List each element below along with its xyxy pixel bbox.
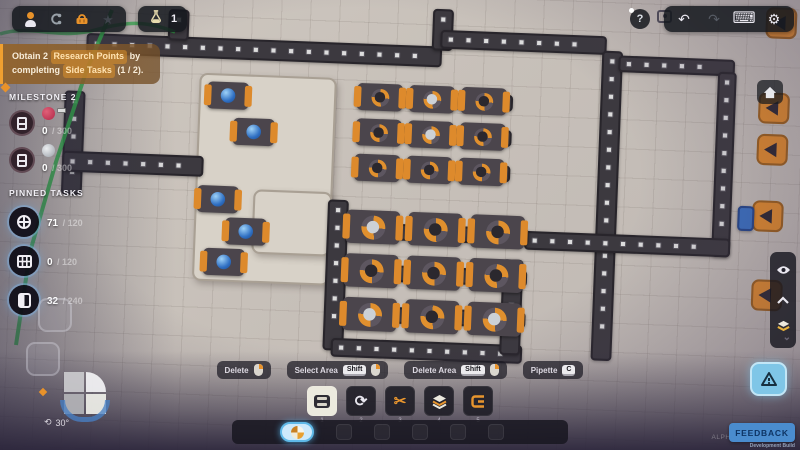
belt-item xyxy=(606,147,612,153)
c-key-badge: C xyxy=(562,365,575,376)
half-shape-icon xyxy=(9,285,39,315)
belt-item xyxy=(720,185,726,191)
locked-feature-icon: ★ xyxy=(96,7,120,31)
keybindings-button[interactable]: ⌨ xyxy=(732,7,756,31)
belt-item xyxy=(721,150,727,156)
belt-item xyxy=(626,61,632,67)
belt-item xyxy=(679,63,685,69)
machine[interactable] xyxy=(468,258,523,293)
belt-item xyxy=(217,45,223,51)
pinned-progress-value: 71 xyxy=(47,218,58,229)
empty-slot[interactable] xyxy=(374,424,390,440)
belt-item xyxy=(549,238,555,244)
belt-item xyxy=(140,161,146,167)
belt-item xyxy=(341,50,347,56)
machine[interactable] xyxy=(345,209,400,244)
belt-item xyxy=(600,288,606,294)
machine[interactable] xyxy=(404,299,459,334)
empty-slot[interactable] xyxy=(488,424,504,440)
belt-item xyxy=(518,39,524,45)
objective-highlight-side-tasks: Side Tasks xyxy=(63,64,115,78)
hint-select-area: Select Area Shift xyxy=(287,361,389,379)
belt-item xyxy=(331,295,337,301)
belt-item xyxy=(601,270,607,276)
development-build-label: Development Build xyxy=(750,443,795,449)
target-shape-icon xyxy=(9,207,39,237)
machine[interactable] xyxy=(406,255,461,290)
mouse-icon xyxy=(371,364,380,376)
machine[interactable] xyxy=(202,248,245,277)
shop-basket-icon[interactable] xyxy=(70,7,94,31)
belt-item xyxy=(323,49,329,55)
chevron-up-icon xyxy=(777,296,789,304)
shape-slot-bar xyxy=(232,420,568,444)
machine[interactable] xyxy=(406,156,453,185)
redo-button[interactable]: ↷ xyxy=(702,7,726,31)
undo-icon: ↶ xyxy=(678,12,690,26)
belt-item xyxy=(637,241,643,247)
tool-belts[interactable]: 1 xyxy=(307,386,337,416)
shift-key-badge: Shift xyxy=(461,365,485,376)
selected-shape-button[interactable] xyxy=(280,422,314,442)
shift-key-badge: Shift xyxy=(343,365,367,376)
warning-button[interactable] xyxy=(750,362,787,396)
belt-item xyxy=(444,348,450,354)
pinned-progress-total: / 120 xyxy=(63,218,83,228)
research-points-counter[interactable]: 1 xyxy=(138,6,187,32)
belt-item xyxy=(288,48,294,54)
pinned-tasks-panel: PINNED TASKS 71 / 120 0 / 120 32 / 240 xyxy=(9,188,139,315)
belt-item xyxy=(164,43,170,49)
top-right-toolbar: ↶ ↷ ⌨ ⚙ xyxy=(664,6,794,32)
machine[interactable] xyxy=(224,217,267,246)
tool-rotate[interactable]: ⟳ 2 xyxy=(346,386,376,416)
hint-delete: Delete xyxy=(217,361,271,379)
milestone-goal-row[interactable]: 0 / 300 xyxy=(9,107,139,139)
belt-item xyxy=(334,225,340,231)
research-count: 1 xyxy=(171,13,177,25)
hint-label: Delete xyxy=(225,366,249,375)
machine[interactable] xyxy=(357,83,404,112)
belt-item xyxy=(604,200,610,206)
belt-item xyxy=(333,260,339,266)
flask-icon xyxy=(148,9,164,30)
belt-item xyxy=(448,36,454,42)
belt-item xyxy=(440,16,446,22)
pinned-task-row[interactable]: 32 / 240 xyxy=(9,285,139,315)
machine[interactable] xyxy=(342,297,397,332)
character-icon[interactable] xyxy=(18,7,42,31)
belt-item xyxy=(465,37,471,43)
machine[interactable] xyxy=(197,185,240,214)
pinned-task-row[interactable]: 0 / 120 xyxy=(9,246,139,276)
layer-up-button[interactable] xyxy=(777,291,789,309)
machine[interactable] xyxy=(408,212,463,247)
keyboard-icon: ⌨ xyxy=(732,11,755,27)
belt-item xyxy=(175,162,181,168)
layer-stack-icon xyxy=(776,320,791,333)
belt-item xyxy=(723,97,729,103)
machine[interactable] xyxy=(207,81,250,110)
hint-label: Pipette xyxy=(531,366,558,375)
machine[interactable] xyxy=(459,122,506,151)
belt-item xyxy=(235,46,241,52)
grey-shape-icon xyxy=(42,144,55,157)
belt-item xyxy=(599,323,605,329)
belt-item xyxy=(253,47,259,53)
empty-slot[interactable] xyxy=(450,424,466,440)
machine[interactable] xyxy=(344,253,399,288)
milestone-progress-value: 0 xyxy=(42,163,48,174)
machine[interactable] xyxy=(458,158,505,187)
belt-item xyxy=(603,217,609,223)
belt-item xyxy=(158,162,164,168)
belt-item xyxy=(332,278,338,284)
belt-item xyxy=(412,53,418,59)
build-toolbar: 1 ⟳ 2 ✂ 3 4 5 xyxy=(0,386,800,416)
belt-item xyxy=(462,349,468,355)
belt-item xyxy=(338,344,344,350)
settings-button[interactable]: ⚙ xyxy=(762,7,786,31)
belt-item xyxy=(661,62,667,68)
machine[interactable] xyxy=(470,214,525,249)
belt-item xyxy=(673,243,679,249)
belt-tool-icon xyxy=(314,395,330,408)
tool-cutter[interactable]: ✂ 3 xyxy=(385,386,415,416)
belt-item xyxy=(655,242,661,248)
objective-text-prefix: Obtain 2 xyxy=(12,51,48,61)
machine[interactable] xyxy=(354,154,401,183)
belt-item xyxy=(620,241,626,247)
milestone-shape-icon xyxy=(9,147,35,173)
milestone-progress-total: / 300 xyxy=(52,126,72,136)
belt-item xyxy=(605,164,611,170)
belt-item xyxy=(376,51,382,57)
belt-item xyxy=(607,111,613,117)
belt-item xyxy=(531,237,537,243)
belt-item xyxy=(536,40,542,46)
belt-item xyxy=(724,79,730,85)
milestone-goal-row[interactable]: 0 / 300 xyxy=(9,144,139,176)
belt-item xyxy=(604,182,610,188)
belt-item xyxy=(394,52,400,58)
edge-launcher[interactable] xyxy=(752,200,784,232)
belt-item xyxy=(501,38,507,44)
belt-item xyxy=(335,207,341,213)
mouse-icon xyxy=(254,364,263,376)
milestone-progress-value: 0 xyxy=(42,126,48,137)
belt-item xyxy=(479,350,485,356)
hint-pipette: Pipette C xyxy=(523,361,584,379)
machine[interactable] xyxy=(407,120,454,149)
rotate-ccw-icon: ⟲ xyxy=(44,417,52,428)
redo-icon: ↷ xyxy=(708,12,720,26)
belt-item xyxy=(426,348,432,354)
gear-icon: ⚙ xyxy=(768,12,781,26)
feedback-button[interactable]: FEEDBACK xyxy=(729,423,795,442)
edge-launcher[interactable] xyxy=(756,134,788,166)
belt-item xyxy=(373,346,379,352)
home-button[interactable] xyxy=(757,80,783,104)
belt-item xyxy=(567,239,573,245)
belt-item xyxy=(718,221,724,227)
mouse-icon xyxy=(490,364,499,376)
objective-progress: (1 / 2). xyxy=(117,65,143,75)
scissors-icon: ✂ xyxy=(394,394,407,409)
rotate-icon: ⟳ xyxy=(355,394,368,409)
belt-item xyxy=(602,253,608,259)
machine[interactable] xyxy=(232,118,275,147)
rotation-angle: 30° xyxy=(56,418,70,428)
eye-icon xyxy=(776,265,791,275)
belt-item xyxy=(200,45,206,51)
warning-icon xyxy=(760,371,778,387)
visibility-button[interactable] xyxy=(776,262,791,280)
shape-quadrants-icon xyxy=(291,426,304,439)
milestone-shape-icon xyxy=(9,110,35,136)
grid-shape-icon xyxy=(9,246,39,276)
top-left-toolbar: ★ xyxy=(12,6,126,32)
belt-item xyxy=(409,347,415,353)
belt-item xyxy=(270,47,276,53)
game-screen: ★ 1 ? ↶ ↷ ⌨ ⚙ Obtain 2 Research Points b… xyxy=(0,0,800,450)
hint-delete-area: Delete Area Shift xyxy=(404,361,506,379)
milestone-title: MILESTONE 2 xyxy=(9,92,139,102)
machine[interactable] xyxy=(355,118,402,147)
research-node-card xyxy=(38,298,72,332)
belt-item xyxy=(331,313,337,319)
milestone-progress-total: / 300 xyxy=(52,163,72,173)
belt-item xyxy=(391,346,397,352)
rotation-indicator[interactable]: ⟲ 30° xyxy=(44,417,69,428)
belt-item xyxy=(483,38,489,44)
belt-item xyxy=(722,132,728,138)
belt-item xyxy=(720,168,726,174)
belt-item xyxy=(719,203,725,209)
tool-extractor[interactable]: 5 xyxy=(463,386,493,416)
belt-item xyxy=(609,58,615,64)
machine[interactable] xyxy=(409,85,456,114)
hub-tile xyxy=(737,206,755,232)
research-tree-icon[interactable] xyxy=(44,7,68,31)
belt-item xyxy=(696,64,702,70)
extractor-icon xyxy=(470,394,486,409)
tool-stacker[interactable]: 4 xyxy=(424,386,454,416)
belt-item xyxy=(606,129,612,135)
belt-item xyxy=(571,41,577,47)
objective-highlight-research-points: Research Points xyxy=(51,50,128,64)
belt-item xyxy=(584,239,590,245)
home-icon xyxy=(763,86,777,99)
belt-item xyxy=(608,94,614,100)
belt-item xyxy=(554,40,560,46)
belt-item xyxy=(306,49,312,55)
layers-icon xyxy=(431,394,448,409)
belt-item xyxy=(722,115,728,121)
belt-item xyxy=(356,345,362,351)
hotkey-hint-bar: Delete Select Area Shift Delete Area Shi… xyxy=(0,361,800,379)
belt-item xyxy=(600,306,606,312)
pinned-progress-total: / 120 xyxy=(57,257,77,267)
undo-button[interactable]: ↶ xyxy=(672,7,696,31)
collapse-chevron-icon[interactable]: ⌄ xyxy=(783,332,791,343)
help-button[interactable]: ? xyxy=(630,9,650,29)
hint-label: Delete Area xyxy=(412,366,456,375)
empty-slot[interactable] xyxy=(412,424,428,440)
red-shape-icon xyxy=(42,107,55,120)
empty-slot[interactable] xyxy=(336,424,352,440)
belt-item xyxy=(608,76,614,82)
pinned-task-row[interactable]: 71 / 120 xyxy=(9,207,139,237)
belt-item xyxy=(643,62,649,68)
objective-banner: Obtain 2 Research Points by completing S… xyxy=(0,44,160,84)
pinned-progress-value: 0 xyxy=(47,257,53,268)
pinned-tasks-title: PINNED TASKS xyxy=(9,188,139,198)
machine[interactable] xyxy=(460,87,507,116)
belt-item xyxy=(359,51,365,57)
belt-item xyxy=(690,243,696,249)
hint-label: Select Area xyxy=(295,366,338,375)
machine[interactable] xyxy=(467,302,522,337)
belt-item xyxy=(602,240,608,246)
belt-item xyxy=(182,44,188,50)
belt-item xyxy=(334,242,340,248)
question-mark-icon: ? xyxy=(637,13,644,25)
milestone-panel: MILESTONE 2 0 / 300 0 / 300 xyxy=(9,92,139,176)
